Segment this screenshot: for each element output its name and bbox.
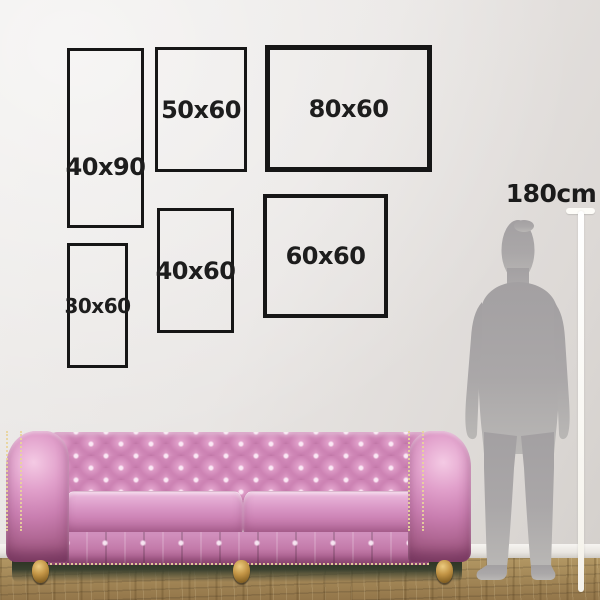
sofa-leg — [436, 560, 453, 583]
nailhead-trim-arm — [6, 431, 22, 531]
person-arm-left — [465, 302, 482, 439]
frame-size-label: 40x90 — [66, 153, 146, 181]
person-leg-left — [484, 432, 517, 567]
height-label: 180cm — [505, 179, 597, 208]
person-leg-right — [521, 432, 554, 567]
wall-scene: 40x90 50x60 80x60 30x60 40x60 60x60 — [0, 0, 600, 600]
person-foot-left — [477, 565, 507, 580]
person-torso — [476, 282, 562, 454]
person-silhouette-icon — [460, 218, 570, 583]
frame-50x60: 50x60 — [155, 47, 247, 172]
frame-size-label: 60x60 — [286, 242, 366, 270]
frame-80x60: 80x60 — [265, 45, 432, 172]
frame-60x60: 60x60 — [263, 194, 388, 318]
sofa-arm-left — [6, 431, 69, 562]
ruler-vertical-line — [578, 211, 584, 592]
frame-size-label: 30x60 — [64, 294, 130, 318]
frame-size-label: 40x60 — [156, 257, 236, 285]
sofa-seat-cushion — [65, 491, 243, 538]
sofa — [6, 427, 471, 583]
frame-40x60: 40x60 — [157, 208, 234, 333]
sofa-leg — [233, 560, 250, 583]
frame-size-label: 50x60 — [161, 96, 241, 124]
frame-40x90: 40x90 — [67, 48, 144, 228]
sofa-arm-right — [408, 431, 471, 562]
frame-30x60: 30x60 — [67, 243, 128, 368]
sofa-seat-cushion — [243, 491, 421, 538]
sofa-leg — [32, 560, 49, 583]
person-foot-right — [531, 565, 555, 580]
frame-size-label: 80x60 — [309, 95, 389, 123]
person-hair — [514, 220, 534, 232]
nailhead-trim-arm — [408, 431, 424, 531]
